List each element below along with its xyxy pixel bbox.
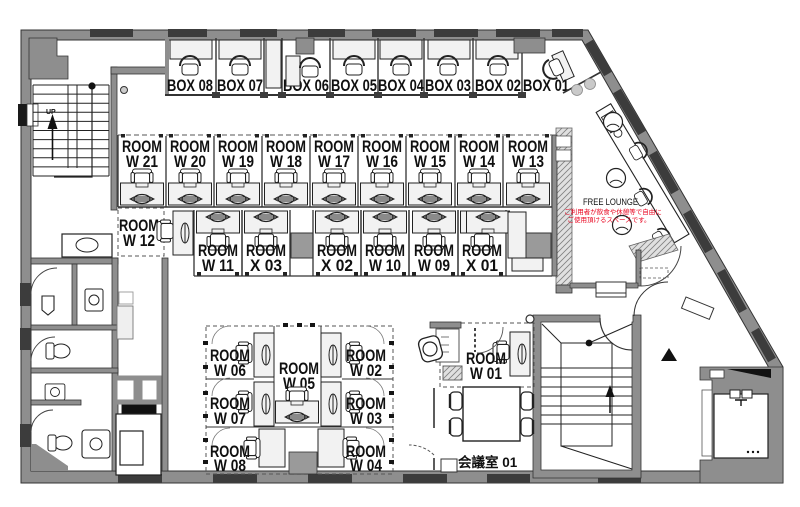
svg-text:BOX 01: BOX 01 — [523, 76, 569, 95]
svg-text:X 02: X 02 — [321, 256, 353, 275]
svg-text:W 16: W 16 — [366, 152, 398, 171]
svg-text:X 03: X 03 — [250, 256, 282, 275]
svg-text:BOX 02: BOX 02 — [475, 76, 521, 95]
svg-text:W 10: W 10 — [369, 256, 401, 275]
svg-text:W 08: W 08 — [214, 456, 246, 475]
svg-text:W 13: W 13 — [512, 152, 544, 171]
svg-text:ご利用者が飲食や休憩等で自由に: ご利用者が飲食や休憩等で自由に — [564, 207, 662, 216]
svg-text:W 06: W 06 — [214, 361, 246, 380]
svg-text:W 21: W 21 — [126, 152, 158, 171]
svg-text:FREE LOUNGE: FREE LOUNGE — [583, 197, 638, 208]
svg-text:BOX 05: BOX 05 — [331, 76, 377, 95]
svg-text:BOX 07: BOX 07 — [217, 76, 263, 95]
svg-text:W 07: W 07 — [214, 409, 246, 428]
svg-text:UP: UP — [46, 109, 56, 116]
svg-text:W 04: W 04 — [350, 456, 382, 475]
svg-text:BOX 04: BOX 04 — [378, 76, 424, 95]
svg-text:W 02: W 02 — [350, 361, 382, 380]
svg-text:W 15: W 15 — [414, 152, 446, 171]
svg-text:W 20: W 20 — [174, 152, 206, 171]
svg-text:W 18: W 18 — [270, 152, 302, 171]
svg-text:W 12: W 12 — [123, 231, 155, 250]
svg-text:W 01: W 01 — [470, 364, 502, 383]
svg-text:BOX 08: BOX 08 — [167, 76, 213, 95]
svg-text:W 17: W 17 — [318, 152, 350, 171]
svg-text:W 19: W 19 — [222, 152, 254, 171]
svg-text:W 11: W 11 — [202, 256, 234, 275]
svg-text:W 14: W 14 — [463, 152, 495, 171]
svg-text:BOX 03: BOX 03 — [425, 76, 471, 95]
svg-text:会議室 01: 会議室 01 — [458, 454, 518, 470]
svg-text:W 09: W 09 — [418, 256, 450, 275]
svg-text:ご使用頂けるスペースです。: ご使用頂けるスペースです。 — [567, 215, 650, 224]
svg-text:X 01: X 01 — [466, 256, 498, 275]
svg-text:W 03: W 03 — [350, 409, 382, 428]
